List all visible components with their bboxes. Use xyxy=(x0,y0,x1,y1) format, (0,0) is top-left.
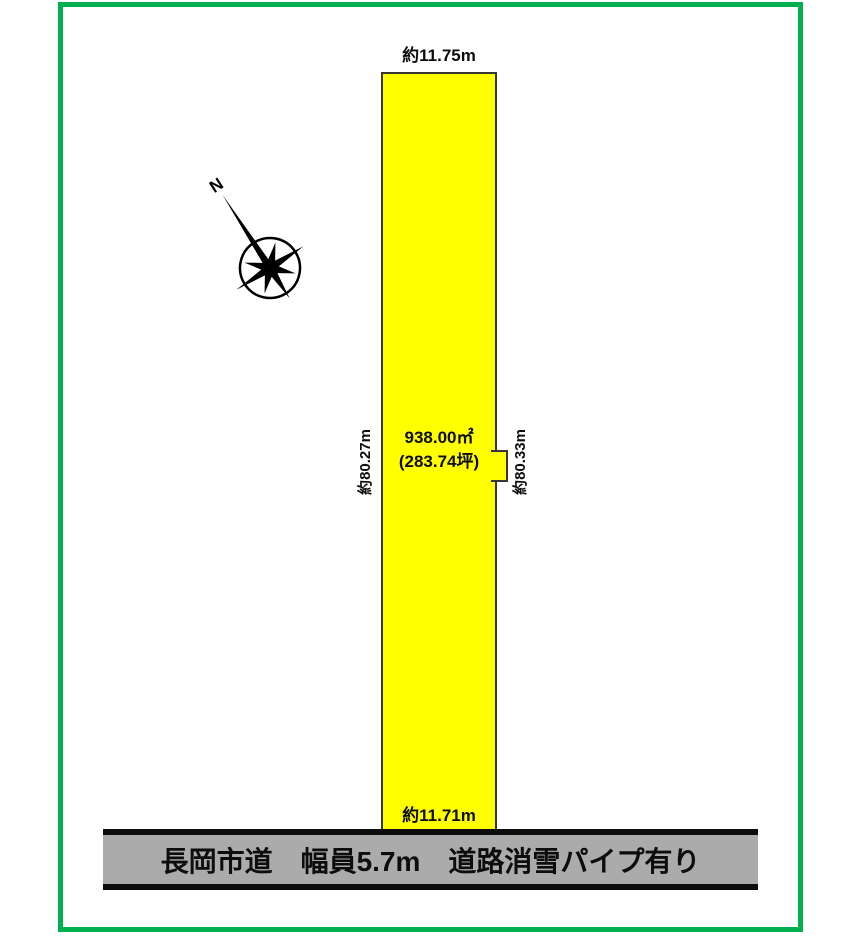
right-length-label: 約80.33m xyxy=(511,392,531,532)
compass-rose: N xyxy=(170,158,370,378)
compass-star xyxy=(189,173,323,320)
compass-star-group: N xyxy=(178,158,324,320)
left-length-label: 約80.27m xyxy=(356,392,376,532)
north-label: N xyxy=(206,174,227,197)
bottom-width-label: 約11.71m xyxy=(381,806,497,826)
top-width-label: 約11.75m xyxy=(363,46,515,66)
road-description-label: 長岡市道 幅員5.7m 道路消雪パイプ有り xyxy=(161,840,701,880)
road-strip: 長岡市道 幅員5.7m 道路消雪パイプ有り xyxy=(103,829,758,890)
area-tsubo: (283.74坪) xyxy=(381,449,497,475)
parcel-area-label: 938.00㎡ (283.74坪) xyxy=(381,426,497,475)
site-plan-diagram: N 約11.75m 約80.27m 約80.33m 938.00㎡ (283.7… xyxy=(0,0,862,936)
area-square-meters: 938.00㎡ xyxy=(381,426,497,449)
